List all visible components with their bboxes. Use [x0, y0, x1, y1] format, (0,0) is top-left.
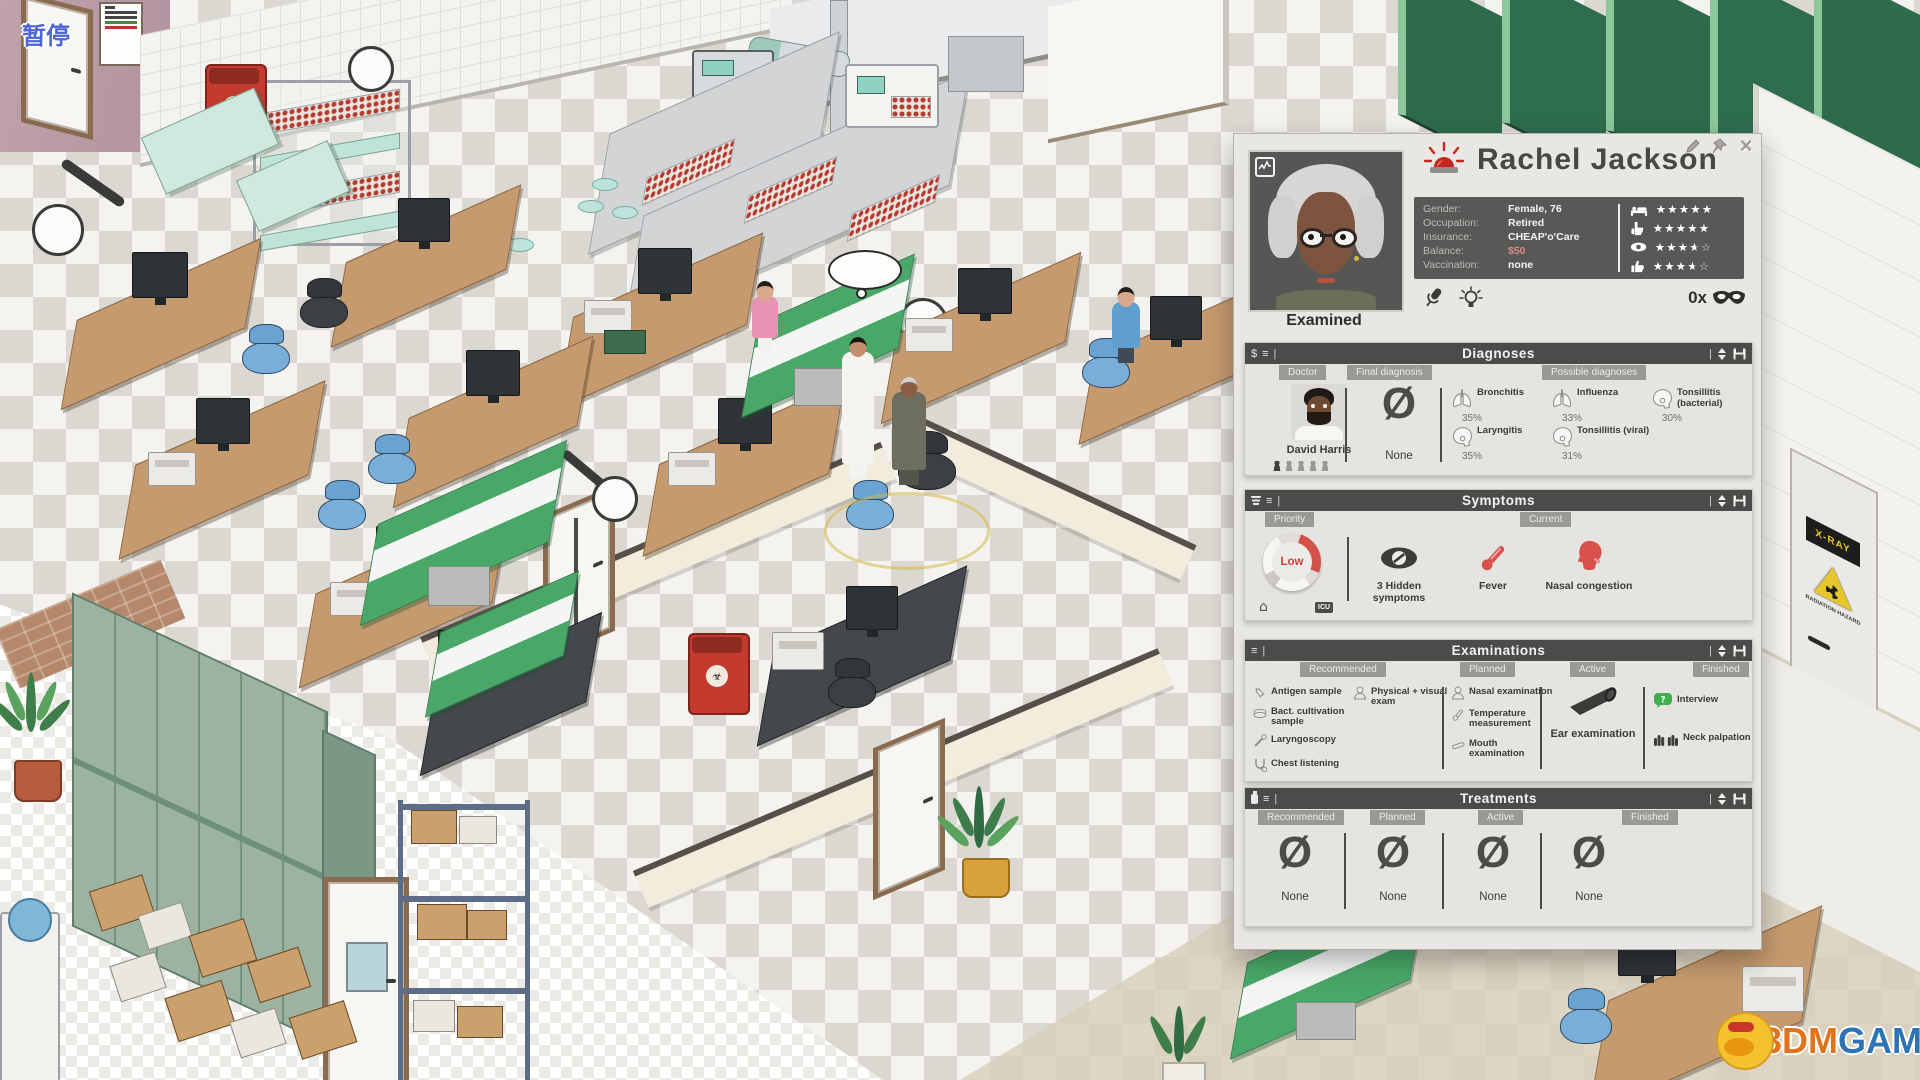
divider [1347, 537, 1349, 601]
tab-doctor[interactable]: Doctor [1279, 365, 1326, 380]
nurse-character[interactable] [752, 296, 778, 338]
water-bottle [8, 898, 52, 942]
doctor-beard [1307, 412, 1331, 425]
cardboard-box [417, 904, 467, 940]
treatment-none: None [1259, 891, 1331, 903]
bin-lid [209, 68, 259, 84]
computer-monitor[interactable] [958, 268, 1012, 314]
portrait-shirt [1276, 290, 1376, 312]
action-icons [1422, 286, 1484, 312]
tab-planned[interactable]: Planned [1370, 810, 1425, 825]
throat-icon [1550, 426, 1573, 452]
diagnosis-name: Tonsillitis (viral) [1577, 426, 1650, 437]
collapse-icon[interactable] [1718, 348, 1727, 360]
divider: | [1709, 348, 1712, 360]
treatment-none: None [1357, 891, 1429, 903]
watermark: 3DM GAME [1716, 1012, 1920, 1070]
divider [1442, 833, 1444, 909]
tab-priority[interactable]: Priority [1265, 512, 1314, 527]
star-rating: ☆★☆★☆★☆★☆★ [1653, 222, 1711, 235]
save-icon[interactable] [1733, 645, 1746, 657]
divider: | [1277, 495, 1280, 507]
exam-item[interactable]: Laryngoscopy [1253, 735, 1363, 745]
hand-icon [1630, 221, 1645, 236]
computer-monitor[interactable] [132, 252, 188, 298]
field-value: none [1508, 260, 1533, 271]
chart-line [105, 21, 137, 24]
portrait-eye [1332, 228, 1357, 248]
office-chair[interactable] [318, 498, 366, 530]
svg-text:?: ? [1660, 696, 1665, 706]
bed-icon [1630, 203, 1648, 216]
symptoms-body: Priority Current Low ⌂ ICU 3 Hidden symp… [1245, 511, 1752, 620]
field-value-balance: $50 [1508, 246, 1526, 257]
printer[interactable] [668, 452, 716, 486]
otoscope-icon [1567, 685, 1619, 719]
stethoscope-icon [1253, 758, 1267, 775]
cardboard-box [189, 918, 258, 978]
lightbulb-icon[interactable] [1458, 286, 1484, 312]
printer[interactable] [148, 452, 196, 486]
collapse-icon[interactable] [1718, 645, 1727, 657]
plant[interactable] [1140, 1006, 1220, 1080]
diagnosis-probability: 31% [1562, 452, 1582, 463]
star-rating: ☆★☆★☆★☆★☆★ [1655, 241, 1713, 254]
star-rating: ☆★☆★☆★☆★☆★ [1653, 260, 1711, 273]
office-chair[interactable] [1560, 1008, 1612, 1044]
field-label: Insurance: [1423, 231, 1472, 243]
rating-row: ☆★☆★☆★☆★☆★ [1630, 257, 1711, 275]
diagnosis-name: Influenza [1577, 388, 1650, 399]
collapse-icon[interactable] [1718, 793, 1727, 805]
door-handle [1808, 635, 1830, 651]
no-treatment-icon: Ø [1357, 829, 1429, 877]
list-icon[interactable]: ≡ [1251, 645, 1257, 657]
office-chair[interactable] [828, 676, 876, 708]
save-icon[interactable] [1733, 793, 1746, 805]
storage-boxes[interactable] [84, 868, 404, 1080]
info-row: Insurance:CHEAP'o'Care [1423, 232, 1472, 243]
header-left-icons: ≡ | [1251, 645, 1265, 657]
divider [1618, 204, 1620, 272]
field-label: Vaccination: [1423, 259, 1479, 271]
section-title: Diagnoses [1245, 346, 1752, 361]
doctor-skill-pips [1273, 458, 1333, 476]
analyzer-tray [891, 96, 931, 118]
cardboard-box [457, 1006, 503, 1038]
patient-character[interactable] [892, 392, 926, 470]
thumbs-up-icon [1630, 259, 1645, 273]
cardboard-box [411, 810, 457, 844]
finished-exam-item[interactable]: ? Interview [1653, 693, 1767, 703]
throat-icon [1650, 388, 1673, 414]
divider: | [1274, 348, 1277, 360]
bin-lid [692, 637, 742, 653]
treatments-section: ≡ | Treatments | Recommended Planned Act… [1244, 787, 1753, 927]
diagnosis-name: Laryngitis [1477, 426, 1550, 437]
tab-finished[interactable]: Finished [1622, 810, 1678, 825]
scope-icon [1253, 734, 1267, 751]
chart-line [105, 26, 137, 29]
possible-diagnosis[interactable]: Influenza 33% [1550, 388, 1650, 399]
petri-icon [1253, 706, 1267, 723]
tab-current[interactable]: Current [1520, 512, 1571, 527]
field-label: Gender: [1423, 203, 1461, 215]
computer-monitor[interactable] [846, 586, 898, 630]
hands-icon [1653, 732, 1679, 753]
filter-icon[interactable] [1251, 496, 1261, 505]
exam-name: Mouth examination [1469, 738, 1524, 759]
symptom-name: Fever [1479, 580, 1507, 592]
exam-table-base [428, 566, 490, 606]
divider [1540, 833, 1542, 909]
finished-exam-item[interactable]: Neck palpation [1653, 733, 1773, 743]
treatments-header: ≡ | Treatments | [1245, 788, 1752, 809]
petri-dish [612, 206, 638, 219]
exam-name: Neck palpation [1683, 732, 1751, 743]
box [459, 816, 497, 844]
symptom-item[interactable]: Fever [1453, 539, 1533, 593]
header-right-icons: | [1709, 495, 1746, 507]
active-exam-item[interactable]: Ear examination [1545, 685, 1641, 740]
cardboard-box [247, 947, 311, 1004]
patient-character[interactable] [1112, 302, 1140, 348]
door[interactable] [878, 725, 940, 893]
machine-screen [702, 60, 734, 76]
field-value: CHEAP'o'Care [1508, 232, 1580, 243]
mask-count: 0x [1688, 288, 1707, 308]
hidden-symptoms-icon [1355, 539, 1443, 577]
portrait-hair [1268, 196, 1298, 258]
plant[interactable] [0, 672, 70, 782]
symptom-item[interactable]: Nasal congestion [1541, 539, 1637, 593]
chart-line [105, 16, 137, 19]
divider [1345, 388, 1347, 462]
diagnosis-probability: 30% [1662, 414, 1682, 425]
header-left-icons: ≡ | [1251, 495, 1280, 507]
watermark-mascot-icon [1716, 1012, 1774, 1070]
nasal-icon [1541, 539, 1637, 577]
pause-indicator: 暂停 [22, 16, 70, 51]
person-pip-icon [1309, 461, 1317, 471]
thermometer-icon [1453, 539, 1533, 577]
sample-tubes [260, 89, 400, 136]
office-chair[interactable] [242, 342, 290, 374]
watermark-game: GAME [1838, 1020, 1920, 1062]
computer-monitor[interactable] [398, 198, 450, 242]
thermometer-small-icon [1451, 708, 1465, 725]
xray-sign-label: X-RAY [1815, 527, 1850, 556]
no-treatment-icon: Ø [1259, 829, 1331, 877]
divider [1540, 687, 1542, 769]
lungs-icon [1450, 388, 1474, 414]
throat-icon [1450, 426, 1473, 452]
diagnosis-name: Tonsillitis (bacterial) [1677, 388, 1750, 409]
home-icon[interactable]: ⌂ [1259, 599, 1268, 615]
divider: | [1709, 495, 1712, 507]
tab-final-diagnosis[interactable]: Final diagnosis [1347, 365, 1432, 380]
analyzer-screen [857, 76, 885, 94]
star-rating: ☆★☆★☆★☆★☆★ [1656, 203, 1714, 216]
priority-value: Low [1263, 533, 1321, 591]
printer[interactable] [772, 632, 824, 670]
list-icon[interactable]: ≡ [1263, 793, 1269, 805]
header-left-icons: $ ≡ | [1251, 348, 1276, 360]
header-right-icons: | [1709, 793, 1746, 805]
portrait-hair [1354, 196, 1384, 258]
interview-icon: ? [1653, 692, 1673, 712]
header-left-icons: ≡ | [1251, 793, 1277, 805]
doctor-portrait[interactable] [1291, 384, 1347, 440]
exam-name: Physical + visual exam [1371, 686, 1447, 707]
diagnoses-header: $ ≡ | Diagnoses | [1245, 343, 1752, 364]
tab-active[interactable]: Active [1570, 662, 1615, 677]
collapse-icon[interactable] [1718, 495, 1727, 507]
cardboard-box [289, 1000, 358, 1060]
water-cooler[interactable] [0, 912, 60, 1080]
no-final-diagnosis-icon: Ø [1363, 380, 1435, 428]
computer-monitor[interactable] [638, 248, 692, 294]
divider [1442, 687, 1444, 769]
biohazard-emblem-icon: ☣ [706, 665, 728, 687]
treatment-none: None [1457, 891, 1529, 903]
person-icon [1451, 686, 1465, 703]
tab-finished[interactable]: Finished [1693, 662, 1749, 677]
person-pip-icon [1285, 461, 1293, 471]
info-row: Vaccination:none [1423, 260, 1479, 271]
possible-diagnosis[interactable]: Tonsillitis (bacterial) 30% [1650, 388, 1750, 409]
diagnosis-name: Bronchitis [1477, 388, 1550, 399]
eye-chart [99, 2, 143, 66]
doctor-eye [1323, 404, 1327, 408]
person-pip-icon [1273, 461, 1281, 471]
divider: | [1709, 793, 1712, 805]
plant-pot [1162, 1062, 1206, 1080]
rating-row: ☆★☆★☆★☆★☆★ [1630, 238, 1713, 256]
symptoms-header: ≡ | Symptoms | [1245, 490, 1752, 511]
diagnosis-probability: 35% [1462, 452, 1482, 463]
doctor-character[interactable] [842, 352, 874, 464]
patient-name: Rachel Jackson [1477, 143, 1757, 177]
header-right-icons: | [1709, 645, 1746, 657]
field-value: Female, 76 [1508, 204, 1562, 215]
person-pip-icon [1297, 461, 1305, 471]
printer[interactable] [584, 300, 632, 334]
exam-name: Chest listening [1271, 758, 1339, 769]
list-icon[interactable]: ≡ [1262, 348, 1268, 360]
examinations-body: Recommended Planned Active Finished Anti… [1245, 661, 1752, 781]
box [413, 1000, 455, 1032]
storage-rack[interactable] [398, 800, 530, 1080]
selection-highlight [824, 492, 990, 570]
divider [1643, 687, 1645, 769]
final-diagnosis-none: None [1363, 450, 1435, 462]
cardboard-box [467, 910, 507, 940]
box [229, 1008, 286, 1059]
diagnosis-probability: 35% [1462, 414, 1482, 425]
plant-pot [962, 858, 1010, 898]
tab-active[interactable]: Active [1478, 810, 1523, 825]
divider: | [1274, 793, 1277, 805]
doctor-coat [1295, 426, 1343, 440]
patient-status-label: Examined [1248, 312, 1400, 330]
printer[interactable] [905, 318, 953, 352]
possible-diagnosis[interactable]: Bronchitis 35% [1450, 388, 1550, 399]
section-title: Symptoms [1245, 493, 1752, 508]
symptom-name: Nasal congestion [1546, 580, 1633, 592]
exam-name: Antigen sample [1271, 686, 1342, 697]
symptom-item[interactable]: 3 Hidden symptoms [1355, 539, 1443, 604]
glasses-bridge [1320, 234, 1332, 237]
mask-icon [1712, 289, 1746, 307]
person-pip-icon [1321, 461, 1329, 471]
exam-item[interactable]: Bact. cultivation sample [1253, 707, 1363, 727]
exam-name: Bact. cultivation sample [1271, 706, 1344, 727]
possible-diagnosis[interactable]: Tonsillitis (viral) 31% [1550, 426, 1650, 437]
tab-recommended[interactable]: Recommended [1258, 810, 1344, 825]
petri-dish [578, 200, 604, 213]
exam-table-base [1296, 1002, 1356, 1040]
lab-analyzer[interactable] [845, 64, 939, 128]
no-treatment-icon: Ø [1553, 829, 1625, 877]
tab-recommended[interactable]: Recommended [1300, 662, 1386, 677]
depressor-icon [1451, 738, 1465, 755]
computer-monitor[interactable] [196, 398, 250, 444]
exam-lamp[interactable] [348, 46, 394, 92]
cabinet[interactable] [948, 36, 1024, 92]
treatments-body: Recommended Planned Active Finished Ø No… [1245, 809, 1752, 926]
exam-item[interactable]: Antigen sample [1253, 687, 1363, 697]
eye-icon [1630, 241, 1647, 253]
header-right-icons: | [1709, 348, 1746, 360]
rating-row: ☆★☆★☆★☆★☆★ [1630, 219, 1711, 237]
speech-bubble [828, 250, 902, 290]
cardboard-box [164, 980, 235, 1042]
paper-tray [604, 330, 646, 354]
office-chair[interactable] [300, 296, 348, 328]
divider: | [1262, 645, 1265, 657]
exam-name: Ear examination [1545, 728, 1641, 740]
exam-name: Interview [1677, 694, 1718, 705]
diagnoses-section: $ ≡ | Diagnoses | Doctor Final diagnosis… [1244, 342, 1753, 476]
examinations-header: ≡ | Examinations | [1245, 640, 1752, 661]
field-label: Balance: [1423, 245, 1464, 257]
divider [1344, 833, 1346, 909]
symptom-name: 3 Hidden symptoms [1373, 580, 1426, 604]
emergency-siren-icon [1422, 139, 1466, 183]
section-title: Treatments [1245, 791, 1752, 806]
box [109, 952, 166, 1003]
tab-planned[interactable]: Planned [1460, 662, 1515, 677]
person-icon [1353, 686, 1367, 703]
computer-monitor[interactable] [1150, 296, 1202, 340]
field-label: Occupation: [1423, 217, 1479, 229]
microphone-icon[interactable] [1422, 286, 1446, 312]
patient-info-box: Gender:Female, 76 Occupation:Retired Ins… [1414, 197, 1744, 279]
save-icon[interactable] [1733, 495, 1746, 507]
rating-row: ☆★☆★☆★☆★☆★ [1630, 200, 1714, 218]
plant[interactable] [944, 786, 1018, 894]
lungs-icon [1550, 388, 1574, 414]
exam-lamp[interactable] [32, 204, 84, 256]
tab-possible-diagnoses[interactable]: Possible diagnoses [1542, 365, 1646, 380]
earring [1354, 256, 1359, 261]
mask-counter: 0x [1688, 288, 1746, 308]
info-row: Occupation:Retired [1423, 218, 1479, 229]
section-title: Examinations [1245, 643, 1752, 658]
possible-diagnosis[interactable]: Laryngitis 35% [1450, 426, 1550, 437]
patient-portrait[interactable] [1248, 150, 1404, 312]
patient-info-panel: × Examined Rachel Jackson Gender:Female,… [1233, 133, 1762, 950]
info-row: Balance:$50 [1423, 246, 1464, 257]
symptoms-section: ≡ | Symptoms | Priority Current Low ⌂ IC… [1244, 489, 1753, 621]
medical-record-icon[interactable] [1255, 157, 1275, 177]
syringe-icon [1253, 686, 1267, 703]
biohazard-bin[interactable]: ☣ [688, 633, 750, 715]
office-chair[interactable] [368, 452, 416, 484]
exam-name: Laryngoscopy [1271, 734, 1336, 745]
exam-lamp[interactable] [592, 476, 638, 522]
icu-icon[interactable]: ICU [1315, 602, 1333, 613]
diagnoses-body: Doctor Final diagnosis Possible diagnose… [1245, 364, 1752, 475]
portrait-lips [1317, 278, 1335, 283]
chart-line [105, 6, 115, 9]
save-icon[interactable] [1733, 348, 1746, 360]
priority-gauge[interactable]: Low [1263, 533, 1321, 591]
cost-icon[interactable]: $ [1251, 348, 1257, 360]
divider [1440, 388, 1442, 462]
pill-bottle-icon[interactable] [1251, 794, 1258, 804]
computer-monitor[interactable] [466, 350, 520, 396]
field-value: Retired [1508, 218, 1544, 229]
speech-bubble-dot [856, 288, 867, 299]
exam-item[interactable]: Chest listening [1253, 759, 1363, 769]
no-treatment-icon: Ø [1457, 829, 1529, 877]
printer[interactable] [1742, 966, 1804, 1012]
treatment-none: None [1553, 891, 1625, 903]
list-icon[interactable]: ≡ [1266, 495, 1272, 507]
portrait-eye [1300, 228, 1325, 248]
divider: | [1709, 645, 1712, 657]
chart-line [105, 11, 137, 14]
examinations-section: ≡ | Examinations | Recommended Planned A… [1244, 639, 1753, 782]
info-row: Gender:Female, 76 [1423, 204, 1461, 215]
diagnosis-probability: 33% [1562, 414, 1582, 425]
doctor-eye [1311, 404, 1315, 408]
exam-name: Temperature measurement [1469, 708, 1531, 729]
plant-pot [14, 760, 62, 802]
petri-dish [592, 178, 618, 191]
